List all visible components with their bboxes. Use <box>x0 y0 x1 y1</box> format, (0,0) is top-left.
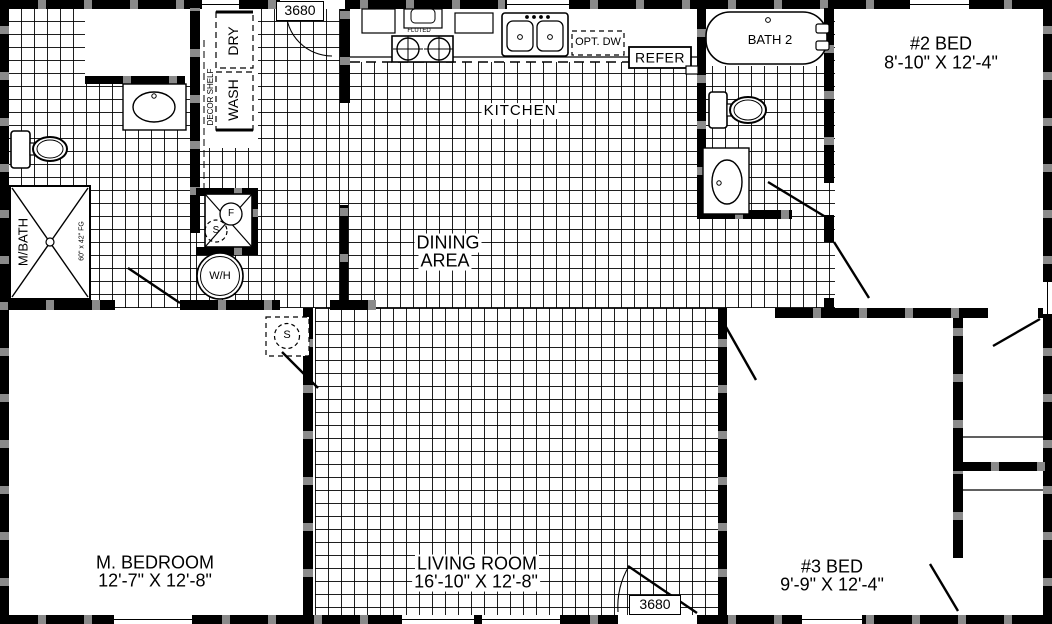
rear-door-tag: 3680 <box>629 595 681 615</box>
mbath-label: M/BATH <box>17 216 30 268</box>
utility-sensor-symbol: S <box>211 226 222 237</box>
sink-bath2 <box>703 148 749 214</box>
mbath-shower-size: 60" x 42" FG <box>79 219 86 263</box>
master-bedroom-dims: 12'-7" X 12'-8" <box>96 572 214 591</box>
dishwasher-label: OPT. DW <box>573 37 623 49</box>
furnace-symbol: F <box>226 209 236 220</box>
refrigerator-label: REFER <box>633 51 687 66</box>
door-swings <box>128 10 1040 613</box>
kitchen-label: KITCHEN <box>482 103 559 119</box>
bed3-dims: 9'-9" X 12'-4" <box>778 576 886 595</box>
bedroom-sensor-symbol: S <box>281 330 292 342</box>
dining-label-line2: AREA <box>418 252 471 271</box>
fixtures-layer <box>0 0 1052 624</box>
furnace-closet <box>205 194 252 247</box>
toilet-mbath <box>11 131 67 168</box>
decor-shelf-label: DECOR SHELF <box>207 67 215 128</box>
bed2-dims: 8'-10" X 12'-4" <box>882 54 1000 73</box>
bed2-label: #2 BED <box>908 35 974 54</box>
toilet-bath2 <box>709 92 766 128</box>
dryer-label: DRY <box>226 24 240 57</box>
washer-label: WASH <box>226 77 240 122</box>
range-label: FLUTED <box>405 28 432 34</box>
kitchen-sink <box>502 13 568 56</box>
bath2-label: BATH 2 <box>746 33 795 47</box>
floor-plan: KITCHEN DINING AREA LIVING ROOM 16'-10" … <box>0 0 1052 624</box>
front-door-tag: 3680 <box>276 1 324 21</box>
sink-mbath <box>123 84 186 130</box>
living-room-dims: 16'-10" X 12'-8" <box>412 573 540 592</box>
range <box>392 9 453 62</box>
water-heater-label: W/H <box>207 271 232 283</box>
